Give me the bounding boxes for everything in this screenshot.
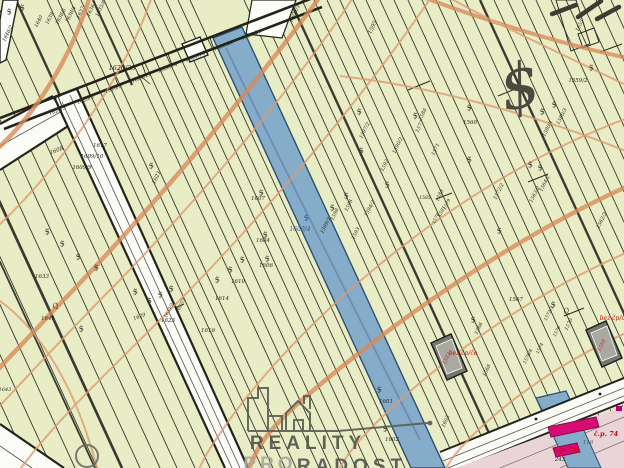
building-magenta-small: [616, 406, 622, 411]
survey-point: [535, 418, 538, 421]
parcel-label: 1601: [379, 399, 393, 405]
parcel-label: 243: [554, 457, 566, 463]
survey-point: [599, 393, 602, 396]
boundary-point: [54, 98, 57, 101]
logo-end-dot: [428, 421, 433, 426]
boundary-point: [76, 88, 79, 91]
parcel-label: 116: [583, 440, 594, 446]
cadastral-map[interactable]: $$$$$$$$$$$$$$$$$$$$$$$$$$$$$$$$$$$$$$QQ…: [0, 0, 624, 468]
building-descriptor-label: bez čp/če: [600, 315, 624, 322]
parcel-label: 1604: [256, 238, 270, 244]
parcel-label: 1617: [93, 143, 107, 149]
parcel-label: 1609/10: [81, 154, 104, 160]
parcel-label: 1633: [35, 274, 49, 280]
parcel-label: 1585: [419, 195, 431, 201]
parcel-label: 1559/2: [568, 78, 588, 84]
parcel-label: 1614: [215, 296, 229, 302]
watermark-text-radost: RADOST: [297, 456, 407, 468]
parcel-label: 1610: [231, 279, 245, 285]
parcel-label: 1567: [509, 297, 523, 303]
parcel-label: 1560: [463, 120, 477, 126]
parcel-label: 1600/4: [289, 226, 310, 233]
parcel-label: 1606: [259, 263, 273, 269]
parcel-label: 1607: [251, 196, 265, 202]
building-descriptor-label: č.p. 74: [594, 430, 619, 438]
parcel-label: 1609/9: [72, 165, 92, 171]
parcel-label: 1620/23: [108, 64, 135, 72]
building-descriptor-label: č.p. 70: [554, 446, 579, 454]
watermark-text-reality: REALITY: [250, 433, 366, 454]
building-descriptor-label: bez čp/če: [449, 350, 478, 357]
parcel-label: 1641: [41, 316, 55, 322]
map-viewport[interactable]: $$$$$$$$$$$$$$$$$$$$$$$$$$$$$$$$$$$$$$QQ…: [0, 0, 624, 468]
watermark-text-pro: PRO: [243, 454, 296, 468]
parcel-label: 1616: [201, 328, 215, 334]
parcel-label: 1643: [0, 387, 11, 393]
parcel-label: 1602: [385, 437, 399, 443]
